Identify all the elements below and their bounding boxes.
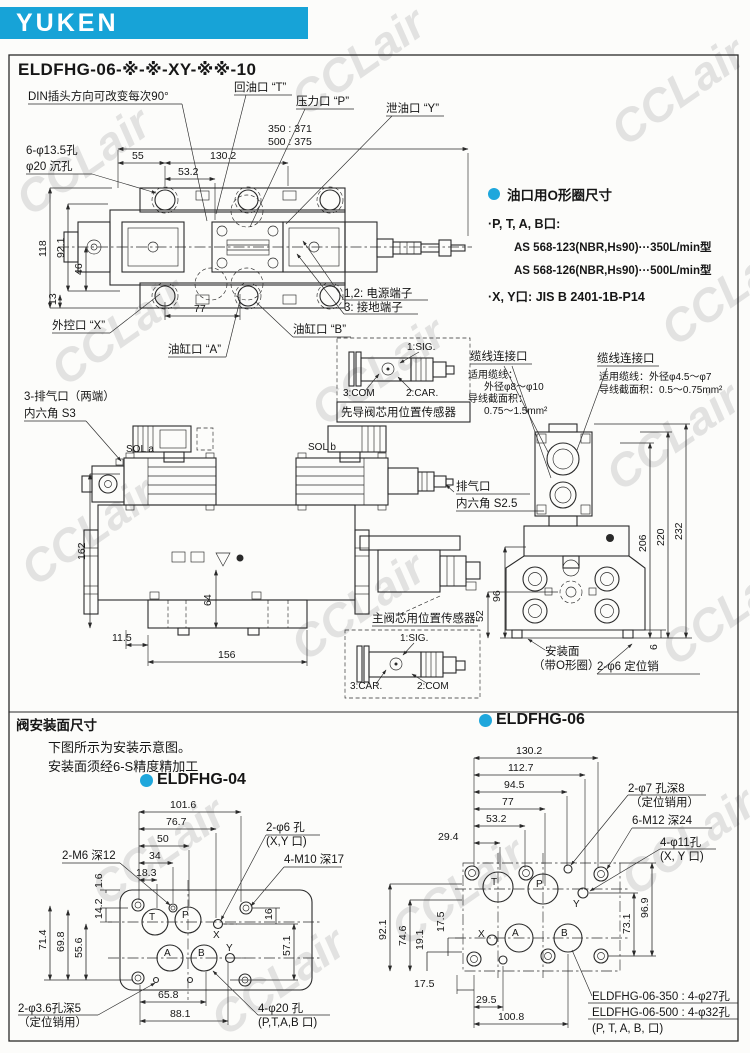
ground-terminal-label: 3: 接地端子 [344, 301, 403, 314]
dim-label: 101.6 [170, 799, 196, 811]
xy-port-callout: (X, Y 口) [660, 851, 704, 863]
cable-right-line: 导线截面积：0.5～0.75mm² [599, 383, 723, 396]
oring-item: AS 568-126(NBR,Hs90)···500L/min型 [514, 262, 750, 278]
dim-label: 130.2 [516, 745, 542, 757]
port-letter: A [512, 928, 519, 939]
port-letter: T [491, 877, 497, 888]
dim-label: 130.2 [210, 150, 236, 162]
port-letter: X [478, 929, 485, 940]
dim-label: 29.4 [438, 831, 459, 843]
cable-left-line: 外径φ8～φ10 [484, 380, 544, 393]
counterbore-label: φ20 沉孔 [26, 160, 73, 173]
dim-label: 92.1 [55, 237, 67, 258]
dim-label: 350 : 371 [268, 123, 312, 135]
dim-label: 16 [263, 908, 275, 920]
port-letter: Y [226, 943, 233, 954]
dim-label: 206 [637, 534, 649, 552]
air-hex-label: 内六角 S2.5 [456, 496, 517, 510]
hole-note-500: ELDFHG-06-500 : 4-φ32孔 [592, 1006, 730, 1019]
dim-label: 94.5 [504, 779, 525, 791]
pilot-sig-label: 1:SIG. [407, 342, 435, 353]
m6-callout: 2-M6 深12 [62, 848, 116, 862]
oring-title: 油口用O形圈尺寸 [507, 184, 612, 204]
eldfhg04-heading: ELDFHG-04 [140, 771, 246, 789]
ptab-hole-callout: 4-φ20 孔 [258, 1002, 304, 1015]
oring-note: 油口用O形圈尺寸 ·P, T, A, B口: AS 568-123(NBR,Hs… [488, 184, 750, 305]
main-sensor-caption: 主阀芯用位置传感器 [372, 611, 476, 625]
dim-label: 220 [655, 528, 667, 546]
port-letter: B [198, 948, 205, 959]
port-p-label: 压力口 “P” [296, 95, 349, 108]
m12-callout: 6-M12 深24 [632, 813, 693, 827]
bleed-port-label: 3-排气口（两端） [24, 389, 115, 403]
dim-label: 112.7 [508, 762, 534, 774]
port-x-label: 外控口 “X” [52, 318, 105, 332]
dim-label: 77 [502, 796, 514, 808]
port-y-label: 泄油口 “Y” [386, 101, 439, 115]
dim-label: 52 [474, 610, 486, 622]
watermark: CCLair [601, 25, 750, 155]
watermark: CCLair [651, 545, 750, 675]
pin-hole-callout: 2-φ3.6孔深5 [18, 1001, 81, 1015]
dim-label: 53.2 [486, 813, 507, 825]
bleed-hex-label: 内六角 S3 [24, 406, 76, 420]
dim-label: 55.6 [73, 937, 85, 958]
port-letter: X [213, 930, 220, 941]
pilot-com-label: 3:COM [343, 388, 375, 399]
oring-item: AS 568-123(NBR,Hs90)···350L/min型 [514, 239, 750, 255]
bullet-icon [140, 774, 153, 787]
pilot-sensor-caption: 先导阀芯用位置传感器 [341, 405, 456, 419]
dim-label: 96.9 [639, 897, 651, 918]
dim-label: 29.5 [476, 994, 497, 1006]
din-note-label: DIN插头方向可改变每次90° [28, 89, 169, 103]
mounting-note-1: 下图所示为安装示意图。 [48, 737, 191, 756]
mount-face-oring-label: （带O形圈） [533, 659, 599, 672]
bolt-holes-label: 6-φ13.5孔 [26, 144, 78, 157]
port-t-label: 回油口 “T” [234, 80, 287, 94]
cable-left-line: 0.75～1.5mm² [484, 406, 548, 417]
port-b-label: 油缸口 “B” [293, 322, 346, 336]
pin-hole-callout2: （定位销用） [630, 795, 699, 809]
dim-label: 17.5 [435, 911, 447, 932]
dim-label: 69.8 [55, 931, 67, 952]
main-sig-label: 1:SIG. [400, 633, 428, 644]
dim-label: 88.1 [170, 1008, 191, 1020]
m10-callout: 4-M10 深17 [284, 852, 344, 866]
mounting-section-heading: 阀安装面尺寸 [16, 714, 97, 734]
xy-hole-callout: 4-φ11孔 [660, 836, 702, 849]
port-letter: T [149, 912, 155, 923]
main-car-label: 3:CAR. [350, 681, 382, 692]
dim-label: 19.1 [414, 929, 426, 950]
dim-label: 118 [37, 240, 49, 257]
dim-label: 77 [194, 303, 206, 315]
dim-label: 64 [202, 594, 214, 606]
power-terminal-label: 1,2: 电源端子 [344, 286, 412, 300]
hole-note-350: ELDFHG-06-350 : 4-φ27孔 [592, 990, 730, 1003]
eldfhg06-heading: ELDFHG-06 [479, 711, 585, 729]
bullet-icon [488, 188, 500, 200]
mount-face-label: 安装面 [545, 644, 580, 658]
dim-label: 46 [73, 263, 85, 275]
oring-item: ·P, T, A, B口: [488, 213, 750, 232]
dim-label: 162 [76, 542, 88, 560]
watermark: CCLair [281, 540, 436, 670]
dim-label: 156 [218, 649, 236, 661]
port-a-label: 油缸口 “A” [168, 342, 221, 356]
dim-label: 34 [149, 850, 161, 862]
dim-label: 57.1 [281, 935, 293, 956]
dim-label: 232 [673, 522, 685, 540]
sol-a-label: SOL a [126, 444, 154, 455]
eldfhg06-title: ELDFHG-06 [496, 711, 585, 729]
sol-b-label: SOL b [308, 442, 336, 453]
xy-hole-callout: 2-φ6 孔 [266, 821, 305, 834]
dim-label: 55 [132, 150, 144, 162]
cable-left-line: 导线截面积： [468, 392, 528, 405]
main-com-label: 2:COM [417, 681, 449, 692]
pin-hole-callout: 2-φ7 孔深8 [628, 781, 685, 795]
dim-label: 76.7 [166, 816, 187, 828]
cable-right-line: 适用缆线：外径φ4.5～φ7 [599, 370, 712, 383]
datasheet-page: YUKEN ELDFHG-06-※-※-XY-※※-10 CCLair CCLa… [0, 0, 750, 1053]
technical-drawing-layer: CCLair CCLair CCLair CCLair CCLair CCLai… [0, 0, 750, 1053]
dim-label: 17.5 [414, 978, 435, 990]
xy-port-callout: (X,Y 口) [266, 836, 307, 848]
dim-label: 50 [157, 833, 169, 845]
dim-label: 73.1 [621, 913, 633, 934]
port-letter: P [182, 910, 189, 921]
dim-label: 1.6 [93, 873, 105, 888]
cable-right-title: 缆线连接口 [597, 351, 655, 365]
eldfhg04-title: ELDFHG-04 [157, 771, 246, 789]
dim-label: 14.2 [93, 898, 105, 919]
port-letter: Y [573, 899, 580, 910]
air-port-label: 排气口 [456, 479, 491, 493]
dim-label: 65.8 [158, 989, 179, 1001]
dim-label: 71.4 [37, 929, 49, 950]
ptab-hole-callout2: (P,T,A,B 口) [258, 1017, 317, 1029]
oring-item: ·X, Y口: JIS B 2401-1B-P14 [488, 286, 750, 305]
dim-label: 6 [648, 644, 660, 650]
dim-label: 11.5 [112, 632, 132, 644]
dim-label: 18.3 [136, 867, 157, 879]
cable-left-title: 缆线连接口 [470, 349, 528, 363]
dim-label: 92.1 [377, 919, 389, 940]
bullet-icon [479, 714, 492, 727]
hole-note-ports: (P, T, A, B, 口) [592, 1023, 663, 1035]
port-letter: B [561, 928, 568, 939]
dim-label: 100.8 [498, 1011, 524, 1023]
pin-hole-callout2: （定位销用） [18, 1015, 87, 1029]
port-letter: P [536, 879, 543, 890]
dim-label: 74.6 [397, 925, 409, 946]
dim-label: 13 [47, 293, 59, 305]
port-letter: A [164, 948, 171, 959]
